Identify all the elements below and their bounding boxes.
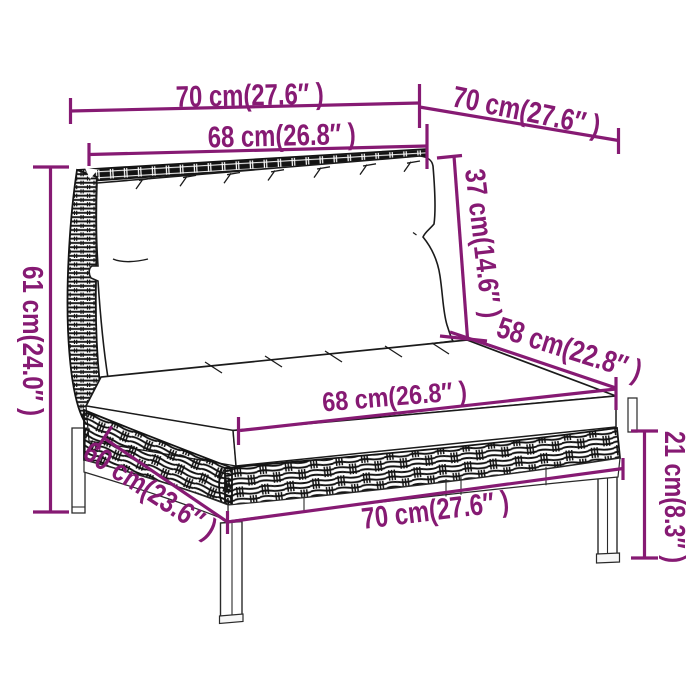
svg-text:21 cm(8.3″ ): 21 cm(8.3″ ) [658, 431, 690, 563]
svg-text:70 cm(27.6″ ): 70 cm(27.6″ ) [450, 81, 604, 143]
svg-text:68 cm(26.8″ ): 68 cm(26.8″ ) [207, 118, 356, 155]
svg-text:61 cm(24.0″ ): 61 cm(24.0″ ) [16, 266, 48, 416]
svg-text:70 cm(27.6″ ): 70 cm(27.6″ ) [175, 78, 324, 114]
